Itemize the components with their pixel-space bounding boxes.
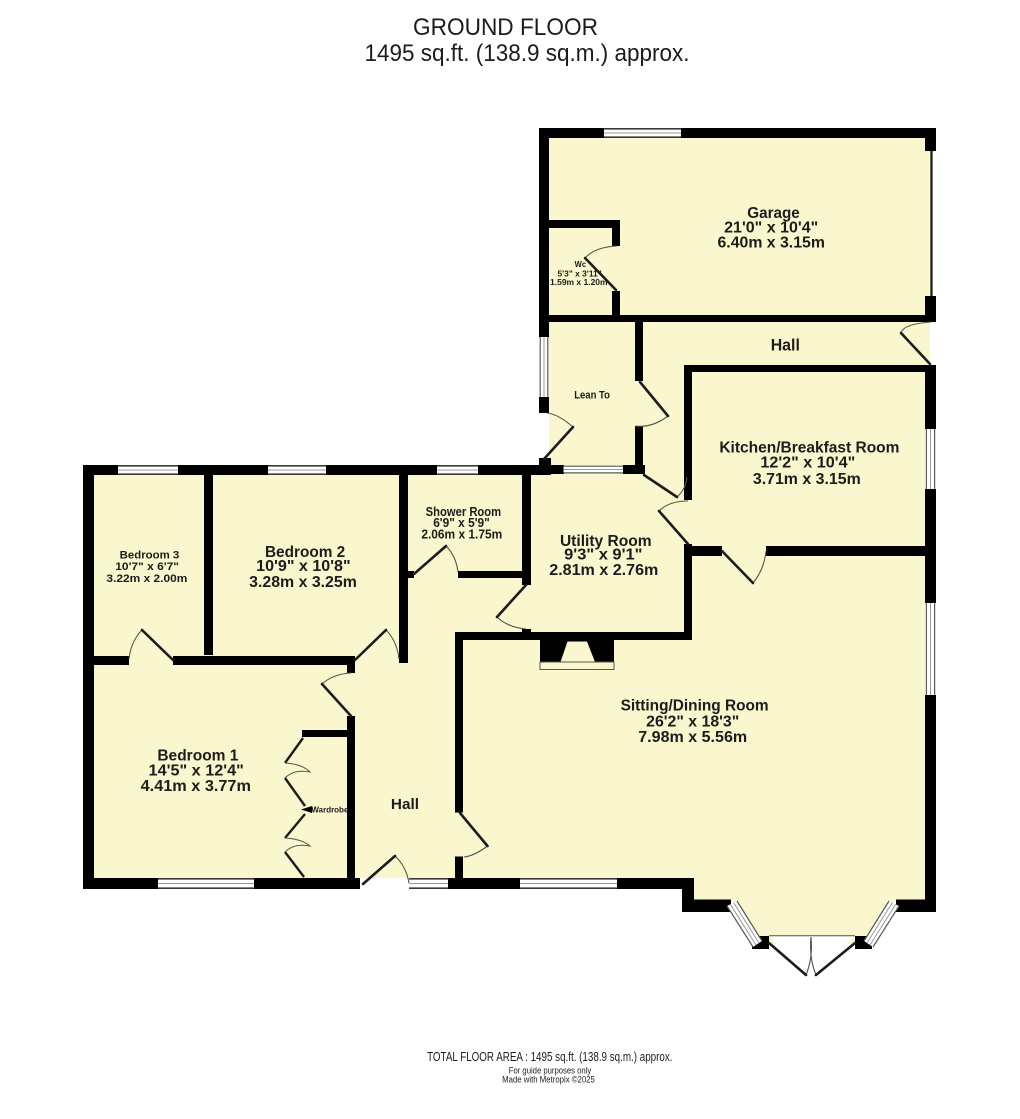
svg-text:10'9" x 10'8": 10'9" x 10'8" <box>256 558 350 575</box>
svg-text:Bedroom 3: Bedroom 3 <box>120 550 180 562</box>
svg-text:Lean To: Lean To <box>574 389 610 401</box>
svg-text:Wc: Wc <box>575 260 587 269</box>
svg-text:TOTAL FLOOR AREA : 1495 sq.ft.: TOTAL FLOOR AREA : 1495 sq.ft. (138.9 sq… <box>427 1049 672 1064</box>
svg-text:Hall: Hall <box>771 335 800 354</box>
svg-text:3.71m x 3.15m: 3.71m x 3.15m <box>753 471 861 488</box>
svg-text:GROUND FLOOR: GROUND FLOOR <box>413 14 598 41</box>
svg-text:Made with Metropix ©2025: Made with Metropix ©2025 <box>502 1075 595 1085</box>
svg-text:Sitting/Dining Room: Sitting/Dining Room <box>621 698 769 715</box>
svg-text:2.81m x 2.76m: 2.81m x 2.76m <box>549 562 658 579</box>
svg-text:3.22m x 2.00m: 3.22m x 2.00m <box>106 573 187 585</box>
svg-text:4.41m x 3.77m: 4.41m x 3.77m <box>141 778 251 795</box>
svg-text:1.59m x 1.20m: 1.59m x 1.20m <box>550 278 608 287</box>
svg-text:14'5" x 12'4": 14'5" x 12'4" <box>149 762 244 779</box>
svg-text:26'2" x 18'3": 26'2" x 18'3" <box>646 713 739 730</box>
svg-text:1495 sq.ft. (138.9 sq.m.) appr: 1495 sq.ft. (138.9 sq.m.) approx. <box>365 40 690 67</box>
svg-text:3.28m x 3.25m: 3.28m x 3.25m <box>249 574 357 591</box>
svg-text:7.98m x 5.56m: 7.98m x 5.56m <box>638 729 747 746</box>
svg-text:10'7" x 6'7": 10'7" x 6'7" <box>115 561 179 573</box>
svg-text:2.06m x 1.75m: 2.06m x 1.75m <box>421 526 502 541</box>
svg-text:Hall: Hall <box>391 796 419 813</box>
svg-text:12'2" x 10'4": 12'2" x 10'4" <box>760 455 855 472</box>
svg-text:6.40m x 3.15m: 6.40m x 3.15m <box>718 235 825 252</box>
svg-text:Wardrobe: Wardrobe <box>311 805 348 815</box>
